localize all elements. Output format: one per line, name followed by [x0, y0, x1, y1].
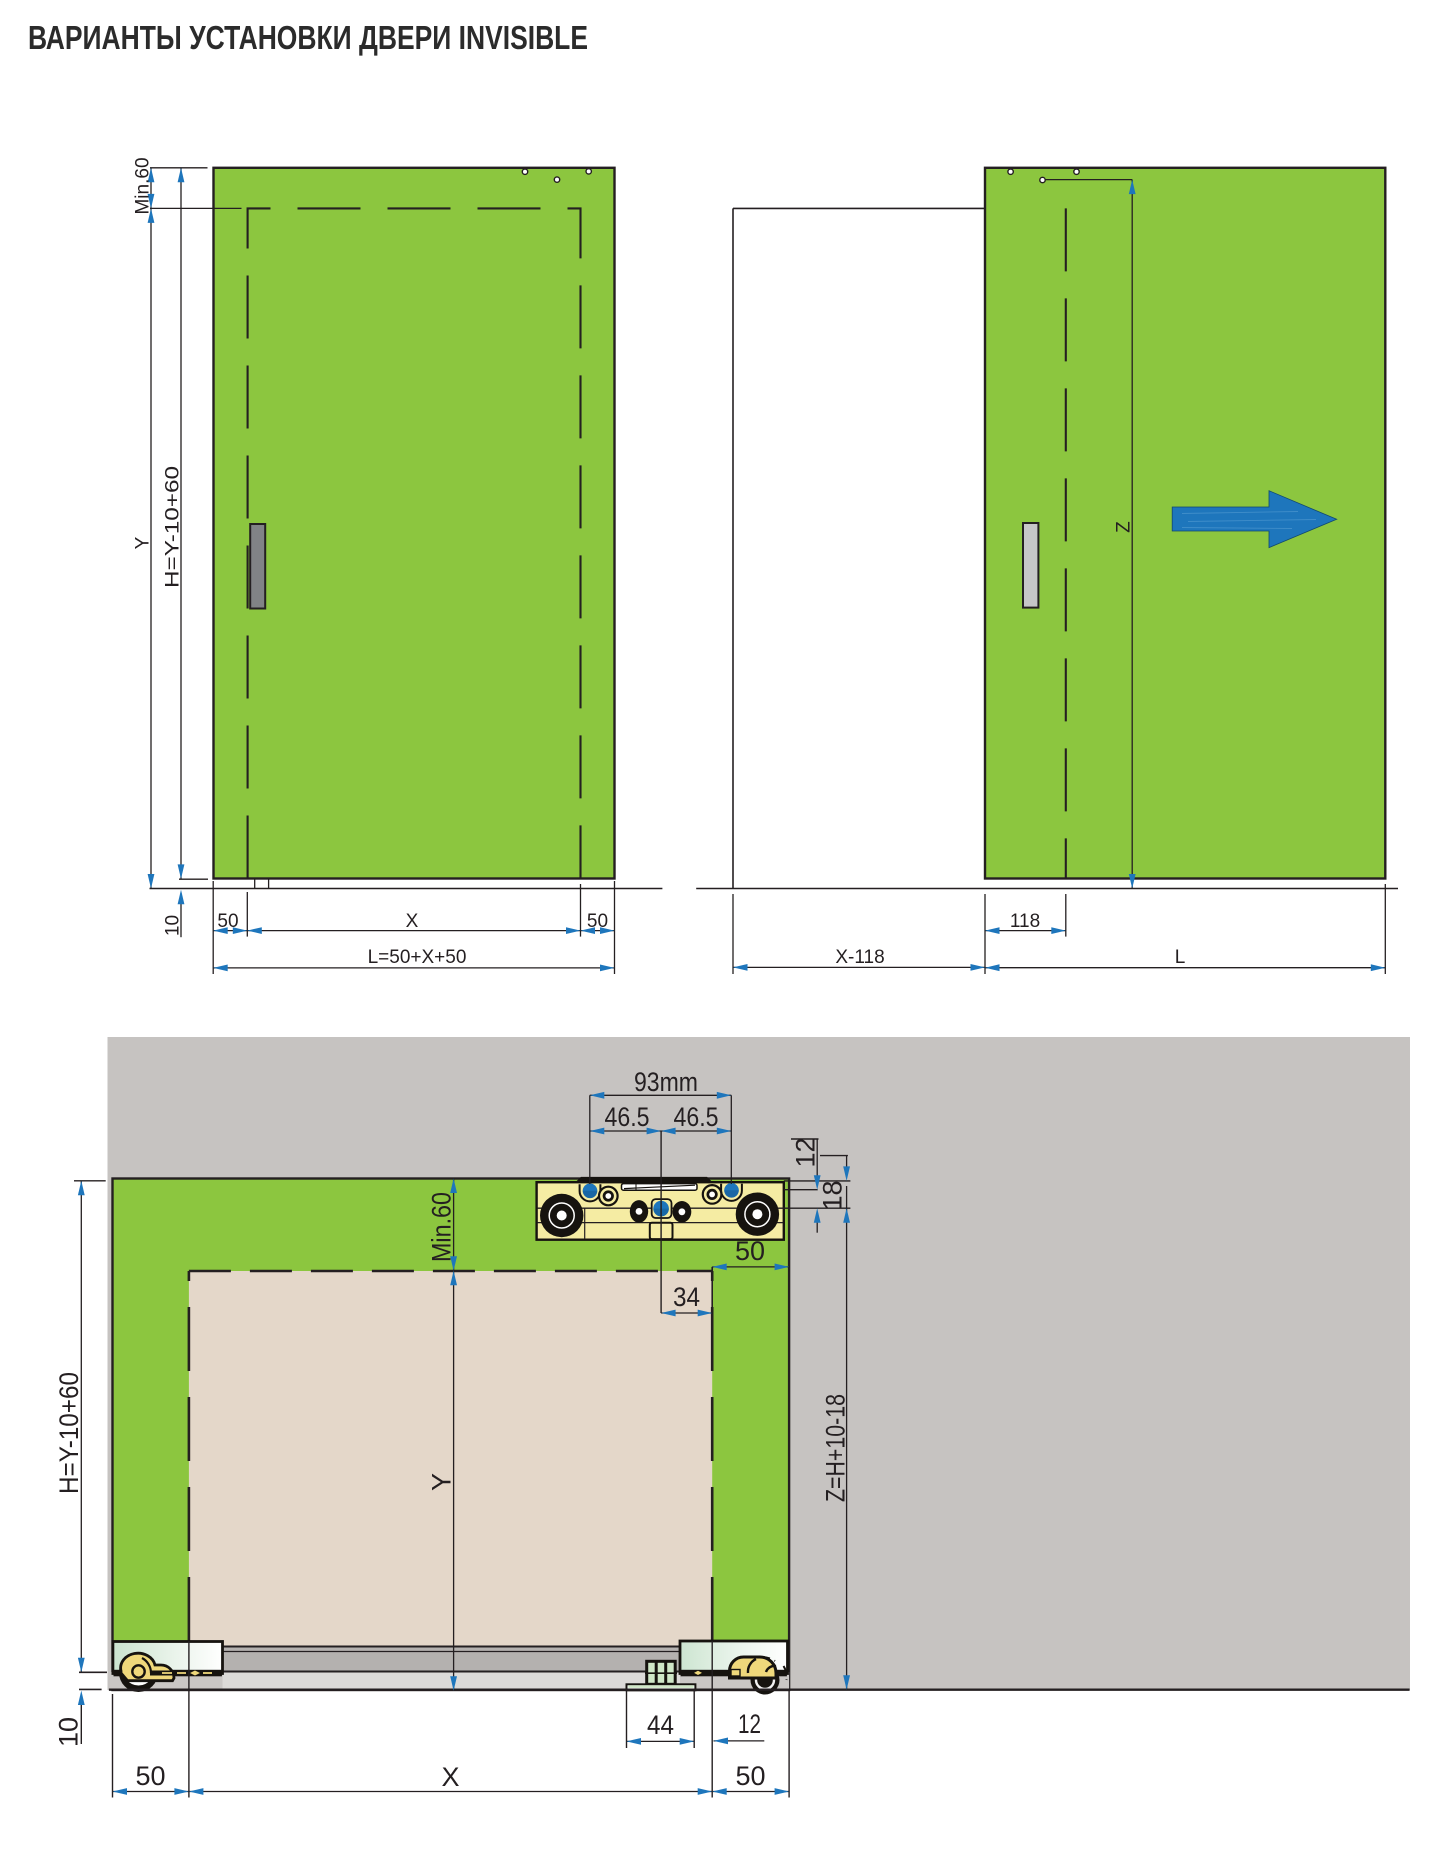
- svg-text:118: 118: [1010, 911, 1040, 932]
- svg-text:Z: Z: [1114, 521, 1135, 533]
- svg-text:18: 18: [818, 1180, 848, 1210]
- svg-text:X-118: X-118: [835, 947, 884, 968]
- svg-text:46.5: 46.5: [605, 1102, 650, 1132]
- svg-text:H=Y-10+60: H=Y-10+60: [54, 1372, 84, 1494]
- svg-text:50: 50: [217, 911, 238, 932]
- svg-text:50: 50: [587, 911, 608, 932]
- svg-text:X: X: [406, 911, 419, 932]
- svg-text:10: 10: [54, 1717, 84, 1747]
- svg-text:Min.60: Min.60: [133, 157, 154, 214]
- svg-text:34: 34: [673, 1282, 700, 1312]
- svg-text:12: 12: [791, 1137, 821, 1167]
- svg-text:50: 50: [735, 1761, 765, 1791]
- svg-text:Y: Y: [133, 536, 154, 549]
- svg-text:50: 50: [135, 1761, 165, 1791]
- svg-text:Z=H+10-18: Z=H+10-18: [821, 1394, 851, 1502]
- svg-text:50: 50: [735, 1236, 765, 1266]
- svg-text:44: 44: [647, 1710, 674, 1740]
- svg-text:ВАРИАНТЫ УСТАНОВКИ ДВЕРИ INVIS: ВАРИАНТЫ УСТАНОВКИ ДВЕРИ INVISIBLE: [28, 19, 588, 56]
- svg-text:X: X: [441, 1762, 459, 1792]
- svg-text:46.5: 46.5: [674, 1102, 719, 1132]
- svg-text:Min.60: Min.60: [427, 1192, 457, 1262]
- svg-text:L: L: [1175, 947, 1186, 968]
- svg-text:12: 12: [738, 1709, 761, 1739]
- svg-text:L=50+X+50: L=50+X+50: [368, 947, 467, 968]
- svg-text:93mm: 93mm: [634, 1067, 698, 1097]
- svg-text:10: 10: [163, 915, 184, 936]
- svg-text:Y: Y: [427, 1473, 457, 1491]
- svg-text:H=Y-10+60: H=Y-10+60: [163, 466, 184, 588]
